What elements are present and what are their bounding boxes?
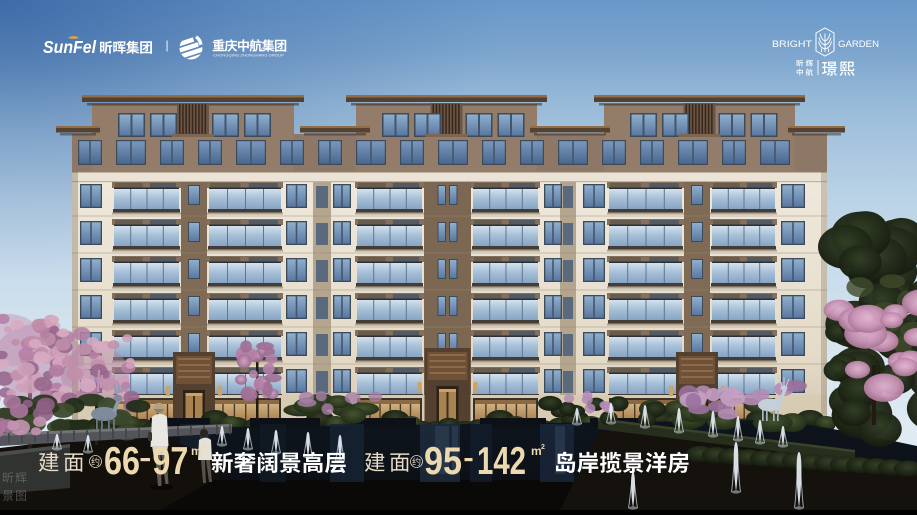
svg-text:BRIGHT: BRIGHT bbox=[772, 39, 813, 49]
svg-text:GARDEN: GARDEN bbox=[838, 39, 879, 49]
svg-text:66: 66 bbox=[104, 440, 140, 483]
svg-text:95: 95 bbox=[424, 440, 462, 483]
svg-text:2: 2 bbox=[541, 444, 545, 451]
svg-text:2: 2 bbox=[201, 444, 205, 451]
svg-text:97: 97 bbox=[152, 440, 188, 483]
svg-text:SunFel: SunFel bbox=[43, 37, 97, 57]
svg-text:CHONGQING ZHONGHANG GROUP: CHONGQING ZHONGHANG GROUP bbox=[213, 54, 285, 58]
svg-text:142: 142 bbox=[477, 440, 526, 483]
